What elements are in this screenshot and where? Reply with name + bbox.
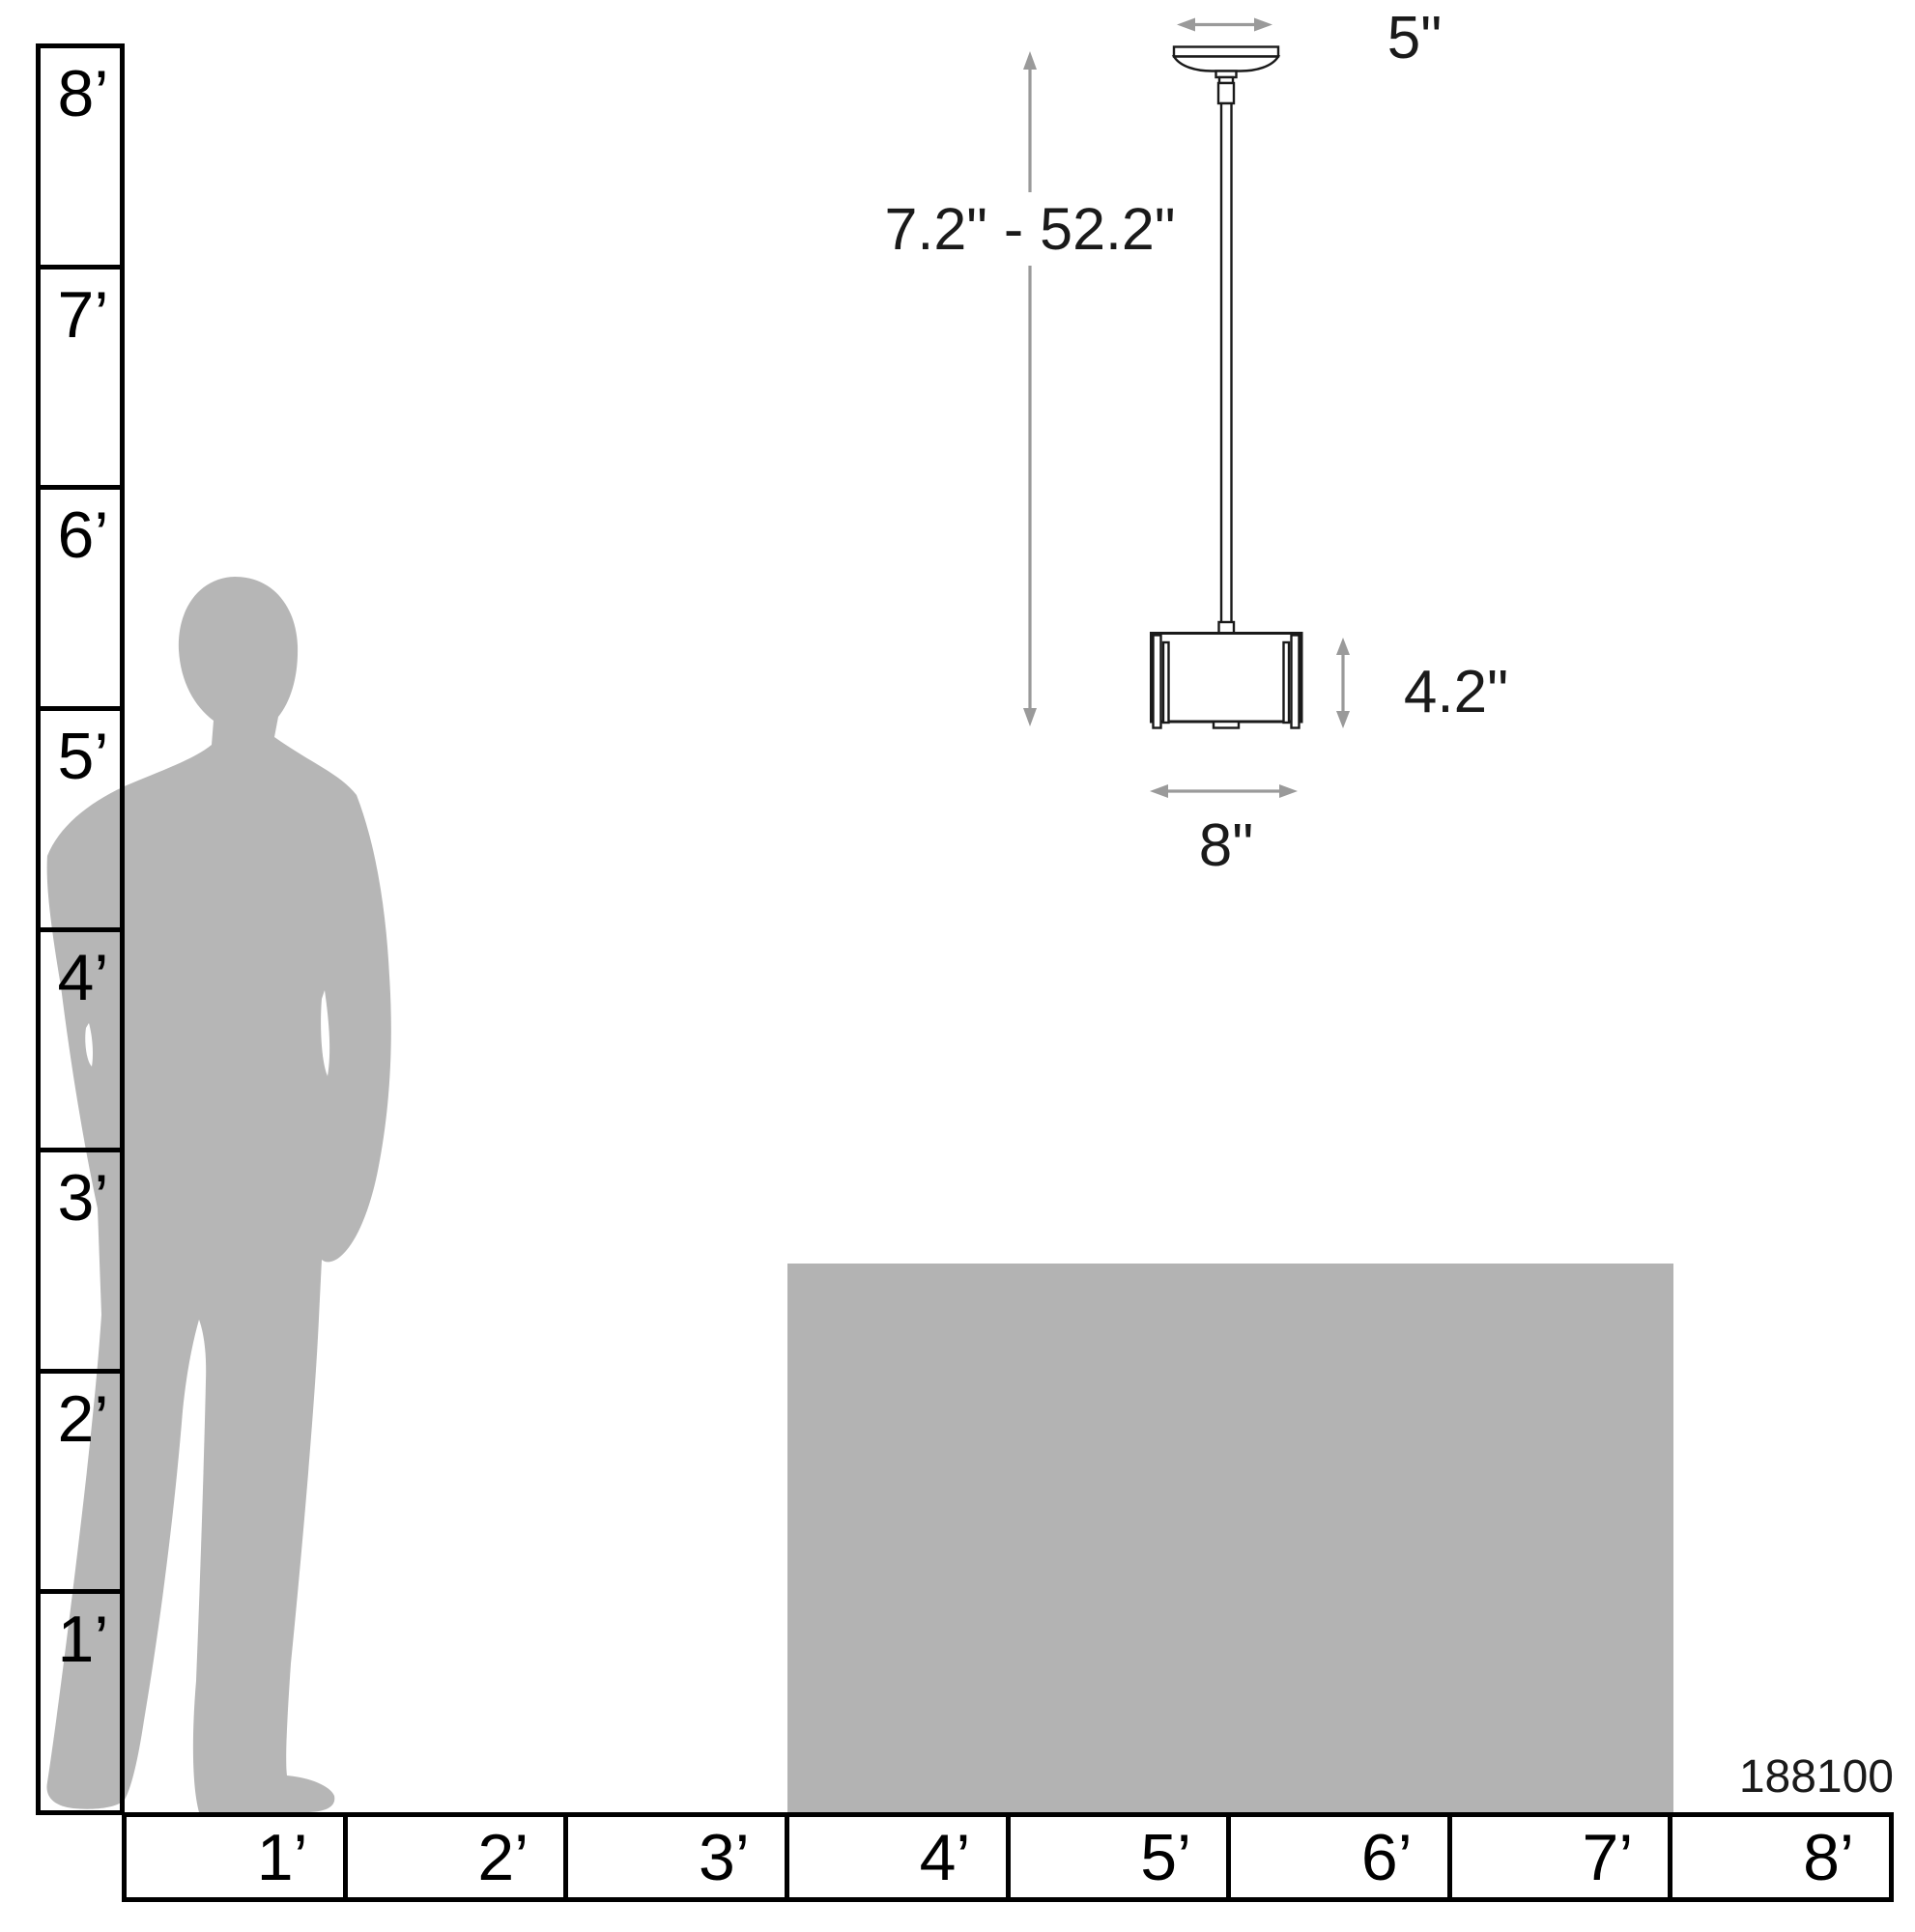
ceiling-canopy [1174,47,1278,104]
shade-left-outer-bar [1154,636,1161,728]
shade [1152,622,1302,728]
shade-left-inner-bar [1163,642,1169,723]
shade-width-arrow [1150,784,1298,798]
shade-right-inner-bar [1284,642,1290,723]
height-range-arrow [1023,51,1037,726]
hang-rod [1221,103,1232,623]
shade-width-label: 8" [1199,816,1254,876]
shade-height-arrow [1336,638,1350,728]
shade-right-outer-bar [1292,636,1300,728]
shade-body [1152,634,1302,723]
pendant-fixture-drawing [0,0,1915,1932]
shade-bottom-finial [1214,722,1239,728]
product-number: 188100 [1643,1750,1894,1804]
canopy-width-arrow [1177,18,1272,32]
shade-height-label: 4.2" [1404,663,1508,723]
height-range-label: 7.2" - 52.2" [884,200,1175,259]
canopy-width-label: 5" [1387,9,1443,69]
